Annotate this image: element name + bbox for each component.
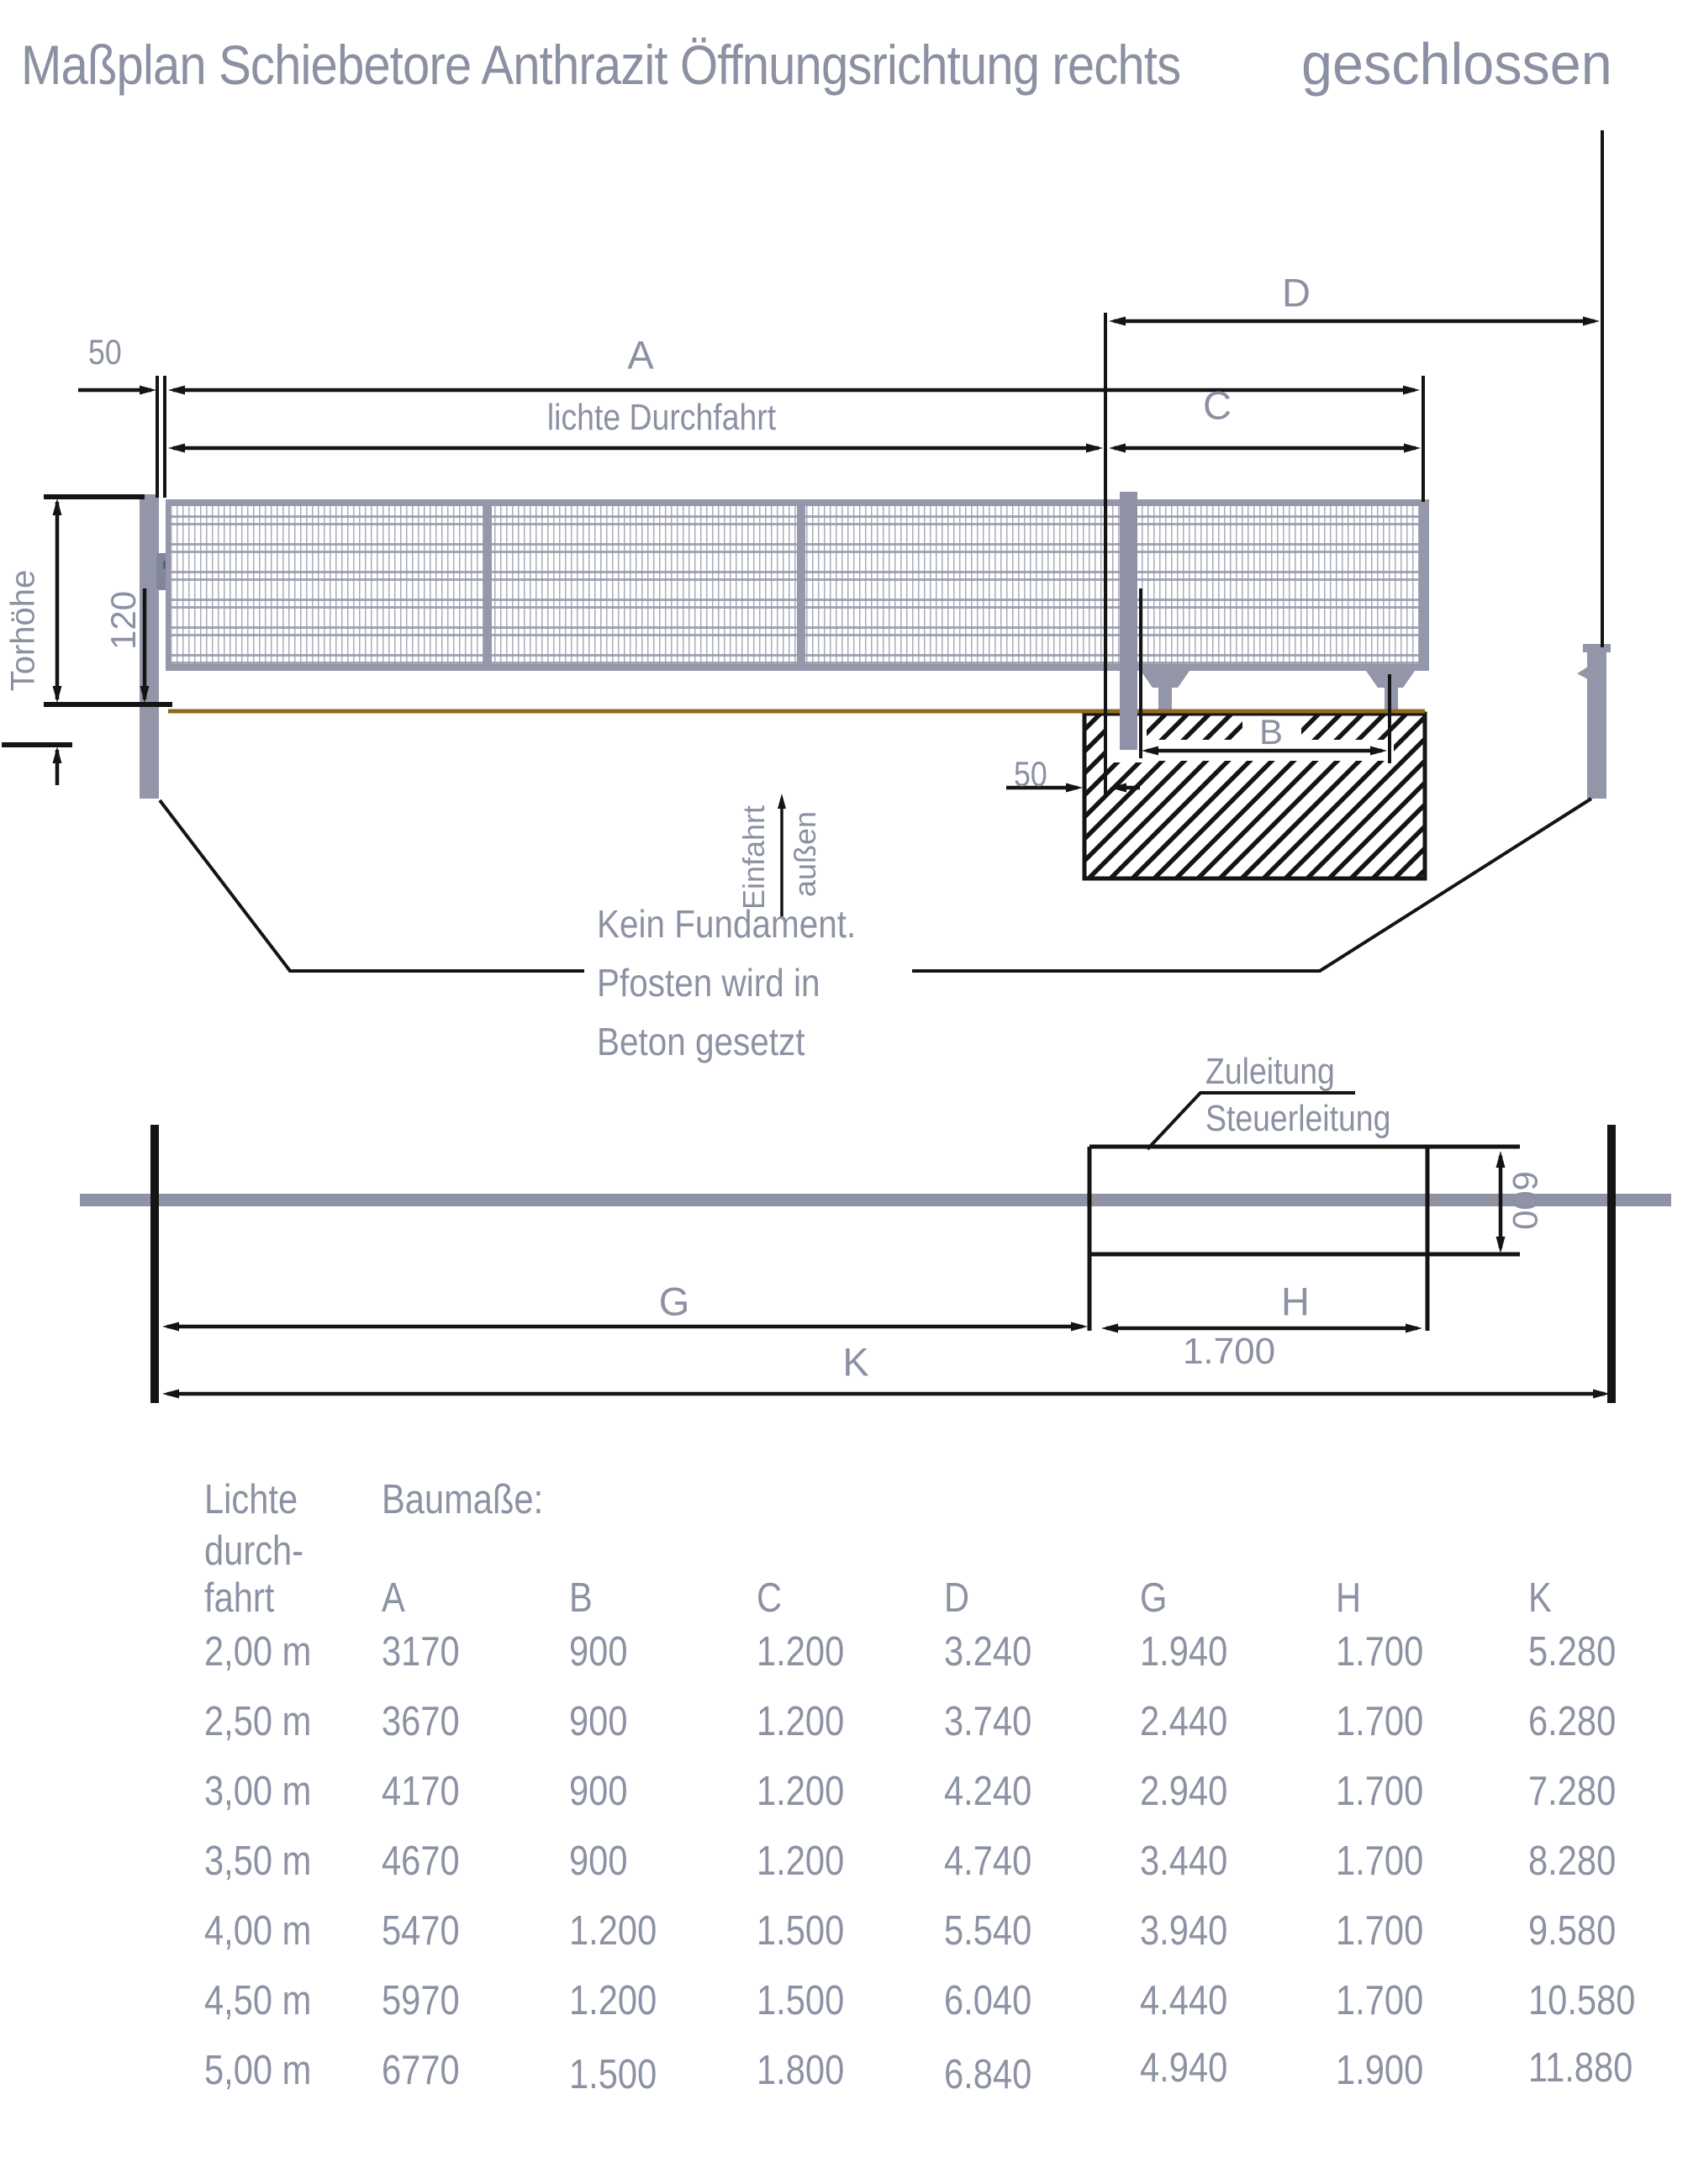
zuleitung-label: Zuleitung [1205, 1051, 1358, 1093]
table-cell: 4170 [382, 1768, 460, 1815]
dim-label-lichte-durchfahrt: lichte Durchfahrt [527, 397, 796, 439]
table-cell: 900 [569, 1838, 628, 1885]
table-cell: 1.700 [1336, 1838, 1423, 1885]
table-cell: 3.240 [944, 1628, 1031, 1675]
table-cell: 4.440 [1140, 1977, 1227, 2024]
table-cell: 1.700 [1336, 1977, 1423, 2024]
dim-label-600: 600 [1505, 1171, 1545, 1230]
extension-lines [157, 130, 1602, 797]
table-cell: 5,00 m [204, 2047, 311, 2094]
table-col-B: B [569, 1575, 593, 1622]
steuerleitung-label: Steuerleitung [1205, 1098, 1423, 1140]
table-cell: 4.740 [944, 1838, 1031, 1885]
table-cell: 3.940 [1140, 1907, 1227, 1955]
table-cell: 11.880 [1528, 2044, 1633, 2092]
table-cell: 10.580 [1528, 1977, 1635, 2024]
table-cell: 1.800 [757, 2047, 844, 2094]
table-rowheader-line3: fahrt [204, 1575, 274, 1622]
table-cell: 2,00 m [204, 1628, 311, 1675]
table-cell: 1.200 [757, 1768, 844, 1815]
table-col-A: A [382, 1575, 405, 1622]
table-cell: 3,50 m [204, 1838, 311, 1885]
table-rowheader-line1: Lichte [204, 1476, 298, 1523]
table-cell: 2.940 [1140, 1768, 1227, 1815]
dim-label-H: H [1281, 1279, 1310, 1325]
foundation-note-line1: Kein Fundament. [597, 901, 856, 947]
table-cell: 900 [569, 1628, 628, 1675]
table-cell: 1.940 [1140, 1628, 1227, 1675]
table-cell: 4.940 [1140, 2044, 1227, 2092]
table-cell: 2,50 m [204, 1698, 311, 1745]
aussen-label: außen [788, 811, 823, 897]
table-cell: 3.440 [1140, 1838, 1227, 1885]
table-cell: 1.500 [757, 1907, 844, 1955]
dim-label-D: D [1282, 270, 1311, 316]
table-cell: 5.280 [1528, 1628, 1616, 1675]
table-col-C: C [757, 1575, 782, 1622]
table-cell: 6.040 [944, 1977, 1031, 2024]
table-cell: 6.840 [944, 2051, 1031, 2098]
table-cell: 1.700 [1336, 1907, 1423, 1955]
table-cell: 4.240 [944, 1768, 1031, 1815]
dim-label-G: G [659, 1279, 690, 1325]
dim-label-120: 120 [103, 591, 144, 650]
table-cell: 900 [569, 1768, 628, 1815]
dim-label-50-left: 50 [88, 332, 128, 372]
table-cell: 3670 [382, 1698, 460, 1745]
dim-label-1700: 1.700 [1183, 1331, 1275, 1373]
table-cell: 1.700 [1336, 1628, 1423, 1675]
table-cell: 1.500 [569, 2051, 657, 2098]
page-title-main: Maßplan Schiebetore Anthrazit Öffnungsri… [21, 33, 1180, 97]
table-cell: 1.700 [1336, 1768, 1423, 1815]
plan-view-lines [150, 1125, 1616, 1403]
table-cell: 7.280 [1528, 1768, 1616, 1815]
table-col-K: K [1528, 1575, 1552, 1622]
table-cell: 1.200 [569, 1977, 657, 2024]
table-cell: 4,00 m [204, 1907, 311, 1955]
dim-label-50-foundation: 50 [1014, 754, 1053, 794]
table-cell: 9.580 [1528, 1907, 1616, 1955]
table-cell: 1.200 [757, 1838, 844, 1885]
foundation-note-line2: Pfosten wird in [597, 960, 820, 1005]
table-group-label: Baumaße: [382, 1476, 543, 1523]
page-title: Maßplan Schiebetore Anthrazit Öffnungsri… [21, 30, 1629, 98]
table-cell: 4,50 m [204, 1977, 311, 2024]
table-cell: 5.540 [944, 1907, 1031, 1955]
table-col-G: G [1140, 1575, 1167, 1622]
table-cell: 8.280 [1528, 1838, 1616, 1885]
table-cell: 1.700 [1336, 1698, 1423, 1745]
dim-label-A: A [627, 332, 653, 378]
foundation-note-line3: Beton gesetzt [597, 1019, 805, 1064]
page-title-suffix: geschlossen [1301, 30, 1612, 98]
table-rowheader-line2: durch- [204, 1527, 303, 1575]
table-col-H: H [1336, 1575, 1361, 1622]
table-cell: 1.900 [1336, 2047, 1423, 2094]
dim-label-K: K [842, 1339, 868, 1385]
table-cell: 3170 [382, 1628, 460, 1675]
table-cell: 3.740 [944, 1698, 1031, 1745]
table-cell: 900 [569, 1698, 628, 1745]
table-cell: 5970 [382, 1977, 460, 2024]
table-cell: 6.280 [1528, 1698, 1616, 1745]
table-cell: 1.200 [757, 1698, 844, 1745]
dim-label-B: B [1259, 712, 1283, 752]
guide-post [1120, 492, 1137, 750]
dim-label-torhoehe: Torhöhe [5, 570, 43, 692]
table-cell: 3,00 m [204, 1768, 311, 1815]
table-cell: 1.200 [569, 1907, 657, 1955]
table-cell: 6770 [382, 2047, 460, 2094]
table-cell: 5470 [382, 1907, 460, 1955]
table-cell: 1.500 [757, 1977, 844, 2024]
table-cell: 1.200 [757, 1628, 844, 1675]
einfahrt-label: Einfahrt [736, 805, 772, 910]
dimension-plan-page: Maßplan Schiebetore Anthrazit Öffnungsri… [0, 0, 1688, 2184]
table-col-D: D [944, 1575, 969, 1622]
dim-label-C: C [1203, 382, 1232, 429]
table-cell: 4670 [382, 1838, 460, 1885]
table-cell: 2.440 [1140, 1698, 1227, 1745]
